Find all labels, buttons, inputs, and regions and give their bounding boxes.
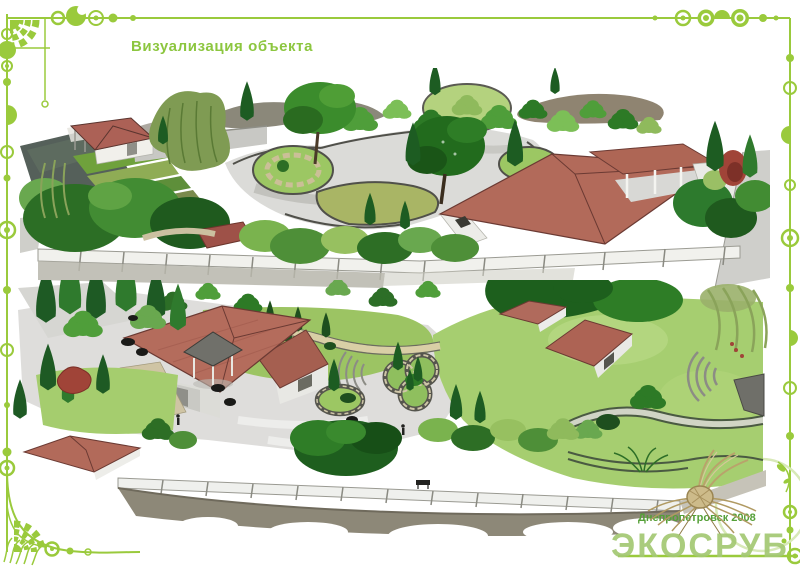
top-border-circles [52, 5, 779, 27]
ecosrub-logo: ЭКОСРУБ [611, 529, 789, 563]
big-front-tree [290, 420, 402, 476]
render-top-view [15, 68, 770, 290]
dark-grass-tuft [614, 447, 668, 472]
visualization-sheet: Визуализация объекта Днепропетровск 2008… [0, 0, 800, 566]
corner-fan-top-left [10, 20, 36, 46]
sheaf-knot [687, 486, 713, 508]
page-title: Визуализация объекта [131, 38, 313, 55]
